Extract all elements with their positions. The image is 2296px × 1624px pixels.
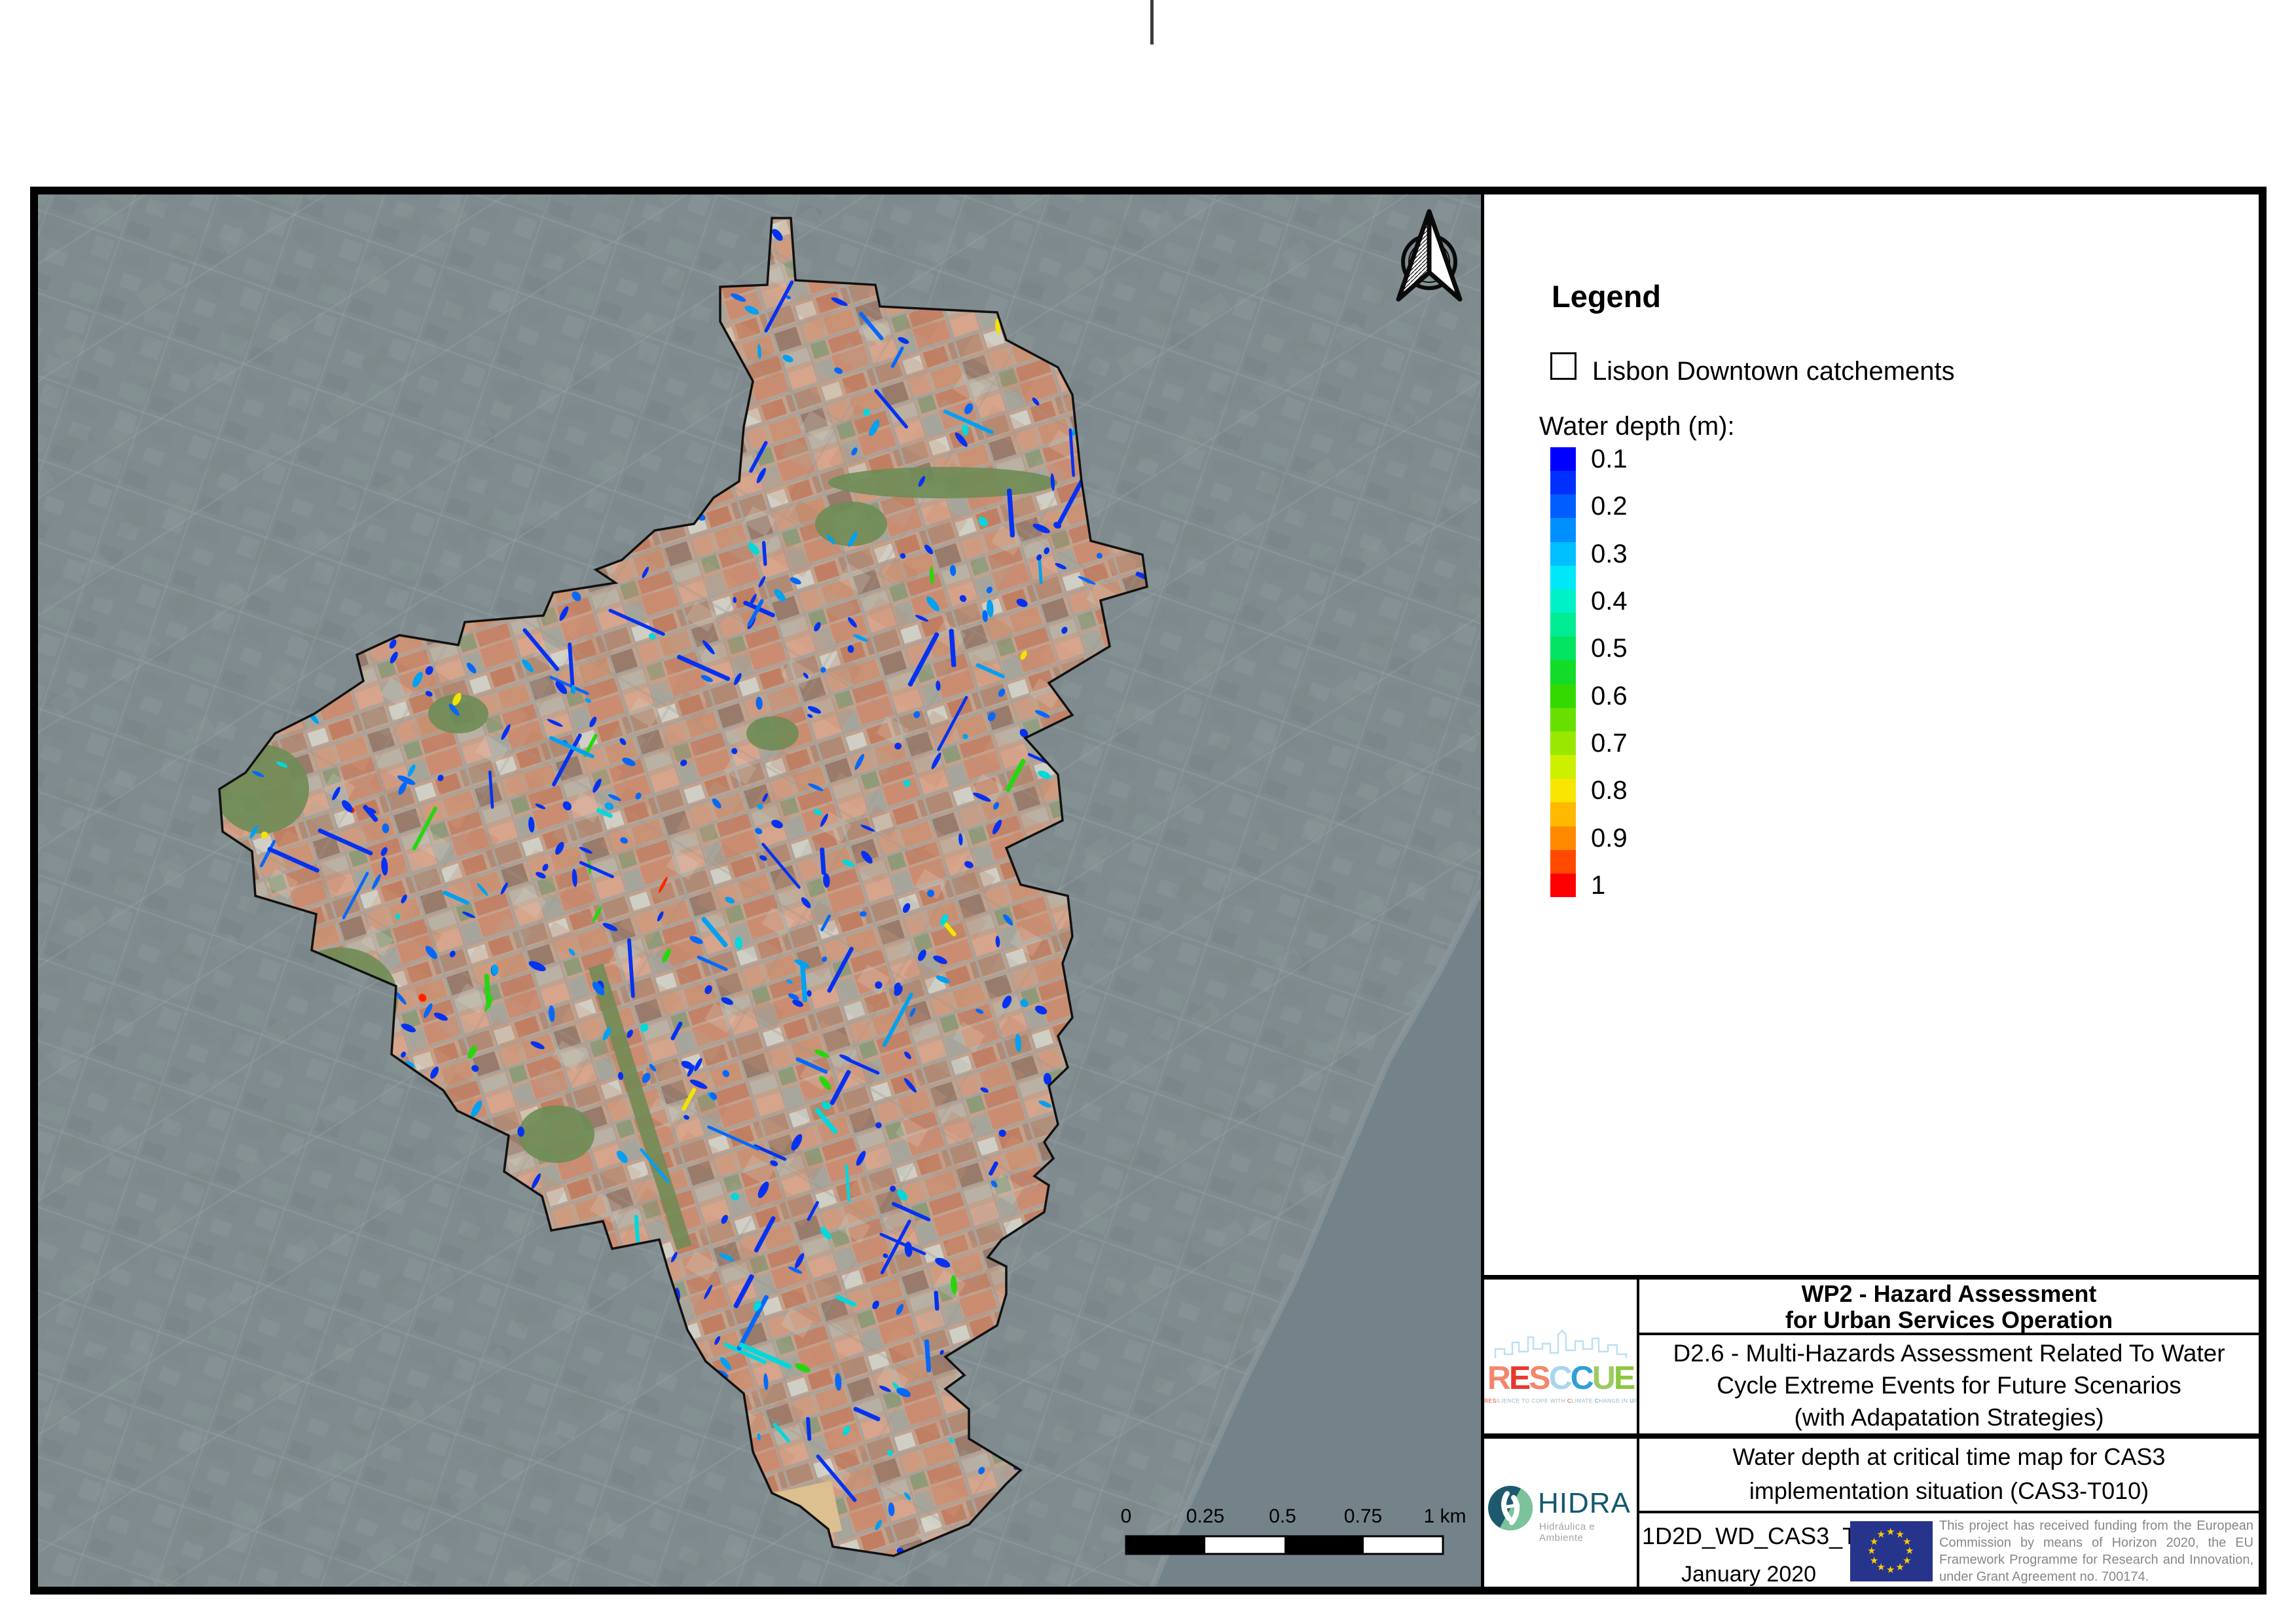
resccue-logo: RESCCUE RESILIENCE TO COPE WITH CLIMATE … [1484, 1280, 1639, 1439]
title-block-footer: 1D2D_WD_CAS3_T010 January 2020 ★★★★★★★★★… [1639, 1513, 2259, 1587]
hidra-logo: HIDRA Hidráulica e Ambiente [1484, 1439, 1639, 1587]
water-depth-color-ramp [1550, 447, 1576, 897]
resccue-wordmark: RESCCUE [1484, 1361, 1637, 1394]
resccue-tagline: RESILIENCE TO COPE WITH CLIMATE CHANGE I… [1484, 1397, 1637, 1404]
ramp-label-0.3: 0.3 [1591, 540, 1683, 568]
eu-funding-text: This project has received funding from t… [1939, 1517, 2253, 1585]
ramp-label-0.4: 0.4 [1591, 587, 1683, 616]
ramp-label-0.9: 0.9 [1591, 824, 1683, 853]
map-title-line1: Water depth at critical time map for CAS… [1639, 1440, 2259, 1474]
ramp-label-0.7: 0.7 [1591, 729, 1683, 758]
scale-label-075: 0.75 [1344, 1505, 1382, 1527]
hidra-name: HIDRA [1538, 1487, 1631, 1520]
d26-line2: Cycle Extreme Events for Future Scenario… [1639, 1369, 2259, 1401]
registration-mark [1150, 0, 1154, 45]
ramp-label-0.2: 0.2 [1591, 492, 1683, 521]
ramp-label-1: 1 [1591, 871, 1683, 900]
legend-panel: Legend Lisbon Downtown catchements Water… [1484, 194, 2259, 1587]
scale-label-025: 0.25 [1186, 1505, 1224, 1527]
layout-frame: 0 0.25 0.5 0.75 1 km Legend Lisbon Downt… [30, 187, 2267, 1595]
wp2-line2: for Urban Services Operation [1639, 1307, 2259, 1333]
wp2-line1: WP2 - Hazard Assessment [1639, 1281, 2259, 1307]
d26-line3: (with Adapatation Strategies) [1639, 1401, 2259, 1433]
map-canvas: 0 0.25 0.5 0.75 1 km [38, 194, 1481, 1587]
deliverable-title: D2.6 - Multi-Hazards Assessment Related … [1639, 1335, 2259, 1439]
scale-label-0: 0 [1121, 1505, 1132, 1527]
catchment-label: Lisbon Downtown catchements [1592, 357, 1955, 386]
map-date: January 2020 [1681, 1562, 1816, 1587]
scale-label-1km: 1 km [1423, 1505, 1466, 1527]
hidra-subtitle: Hidráulica e Ambiente [1539, 1521, 1637, 1543]
wp2-header: WP2 - Hazard Assessment for Urban Servic… [1639, 1280, 2259, 1335]
catchment-swatch [1550, 352, 1576, 380]
title-block: RESCCUE RESILIENCE TO COPE WITH CLIMATE … [1484, 1275, 2259, 1587]
legend-title: Legend [1552, 278, 1661, 314]
d26-line1: D2.6 - Multi-Hazards Assessment Related … [1639, 1337, 2259, 1369]
map-title-line2: implementation situation (CAS3-T010) [1639, 1474, 2259, 1508]
eu-flag-icon: ★★★★★★★★★★★★ [1850, 1521, 1933, 1581]
resccue-skyline-icon [1493, 1329, 1629, 1358]
ramp-label-0.1: 0.1 [1591, 445, 1683, 473]
scale-label-05: 0.5 [1269, 1505, 1296, 1527]
ramp-label-0.8: 0.8 [1591, 776, 1683, 805]
map-title: Water depth at critical time map for CAS… [1639, 1439, 2259, 1513]
ramp-label-0.6: 0.6 [1591, 682, 1683, 710]
ramp-label-0.5: 0.5 [1591, 634, 1683, 663]
map-layout-page: 0 0.25 0.5 0.75 1 km Legend Lisbon Downt… [0, 0, 2296, 1624]
map-area: 0 0.25 0.5 0.75 1 km [38, 194, 1481, 1587]
hidra-mark-icon [1487, 1485, 1534, 1532]
water-depth-label: Water depth (m): [1539, 412, 1735, 441]
